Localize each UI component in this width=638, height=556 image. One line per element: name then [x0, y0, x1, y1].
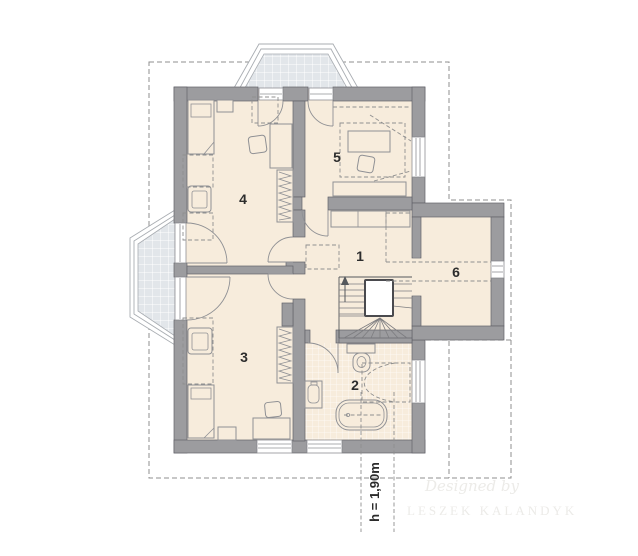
wall [412, 177, 425, 203]
wall [282, 303, 293, 326]
window-bathroom [412, 360, 425, 403]
room-label-6: 6 [452, 264, 460, 280]
watermark-line1: Designed by [424, 477, 520, 495]
toilet-bowl-icon [353, 353, 370, 372]
room-label-5: 5 [333, 149, 341, 165]
room-4-chair [248, 135, 267, 154]
window-room5 [412, 137, 425, 177]
floor-plan-canvas: 1 2 3 4 5 6 h = 1,90m Designed by LESZEK… [0, 0, 638, 556]
room-5-shelf [333, 182, 406, 196]
wall [293, 210, 305, 237]
window-room3 [257, 440, 292, 453]
watermark: Designed by LESZEK KALANDYK [407, 477, 577, 518]
room-3-desk [253, 418, 290, 439]
wall [283, 87, 308, 101]
hallway-cabinet [331, 211, 410, 227]
wall [412, 296, 421, 326]
balcony-door-threshold [175, 277, 186, 320]
wall [328, 197, 412, 210]
room-3-nightstand [218, 427, 236, 440]
room-label-3: 3 [240, 349, 248, 365]
wall [333, 87, 425, 101]
wall [293, 299, 305, 441]
room-label-4: 4 [239, 191, 247, 207]
wall [305, 330, 310, 343]
window-bathroom-south [307, 440, 342, 453]
wall [412, 326, 504, 340]
room-4-nightstand [217, 100, 233, 112]
toilet-tank [347, 344, 375, 353]
wall [412, 203, 504, 217]
height-label: h = 1,90m [367, 462, 382, 522]
room-3-chair [264, 401, 281, 418]
left-balcony [130, 210, 175, 345]
wall [491, 217, 504, 261]
wall [293, 197, 302, 210]
wall [174, 263, 187, 277]
stair-void [365, 280, 393, 316]
wall [339, 338, 412, 343]
wall [412, 403, 425, 453]
room-3-bed [188, 385, 214, 438]
room-4-desk [270, 124, 292, 168]
room-label-2: 2 [351, 377, 359, 393]
wall [187, 266, 293, 274]
wall [491, 278, 504, 326]
wall [412, 217, 421, 258]
room-label-1: 1 [356, 248, 364, 264]
wall [412, 87, 425, 137]
wall [292, 440, 307, 453]
wall [174, 440, 257, 453]
room-5-chair [357, 155, 376, 174]
wall [293, 101, 305, 197]
wall [174, 320, 187, 453]
watermark-line2: LESZEK KALANDYK [407, 503, 577, 518]
room-5-desk [348, 131, 390, 152]
balcony-door-threshold [175, 223, 186, 263]
room-4-bed [188, 100, 214, 154]
window-room6 [491, 261, 504, 278]
floor-plan-page: 1 2 3 4 5 6 h = 1,90m Designed by LESZEK… [0, 0, 638, 556]
wall [412, 340, 425, 360]
